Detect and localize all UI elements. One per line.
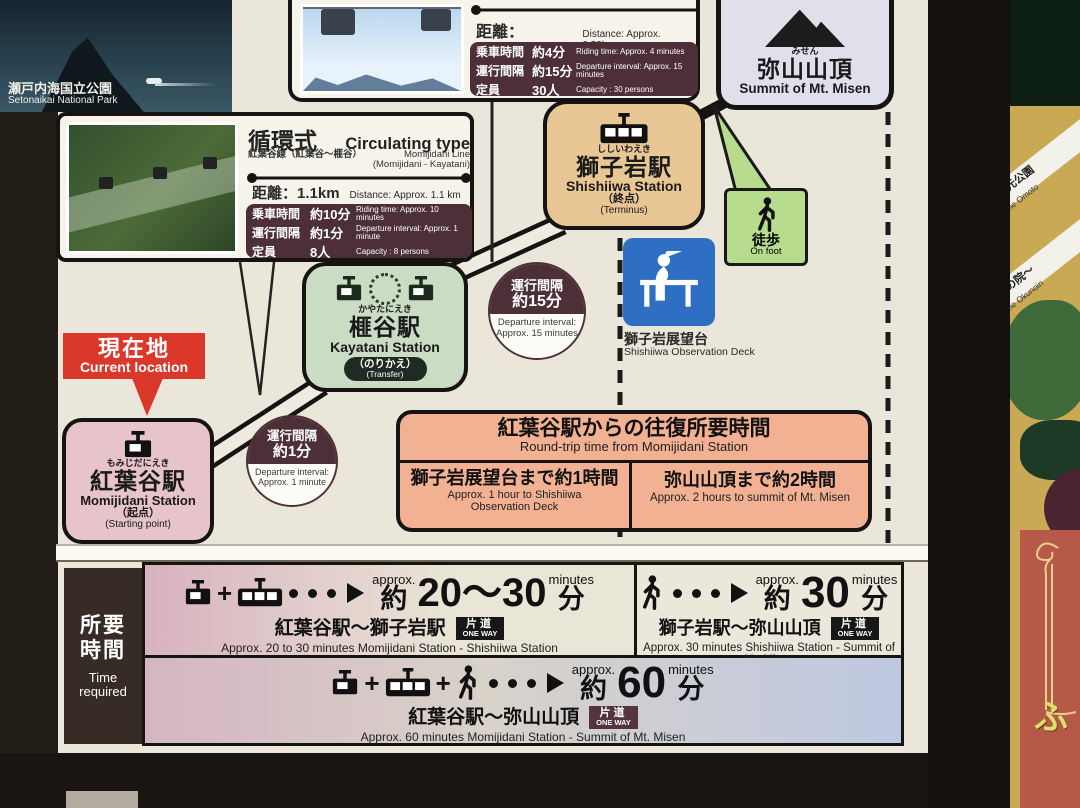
duration-value: 60 (617, 663, 666, 703)
onfoot-box: 徒歩 On foot (724, 188, 808, 266)
onfoot-label-en: On foot (750, 247, 781, 257)
riding-value-jp: 約4分 (532, 42, 576, 61)
riding-en: Riding time: Approx. 10 minutes (356, 206, 466, 222)
line-stats: 乗車時間約10分Riding time: Approx. 10 minutes … (246, 204, 472, 258)
interval-en: Departure interval: Approx. 1 minute (356, 225, 466, 241)
roundtrip-title-en: Round-trip time from Momijidani Station (400, 440, 868, 454)
current-location-flag: 現在地 Current location (63, 333, 205, 379)
capacity-en: Capacity : 30 persons (576, 86, 692, 94)
boat-wake (155, 83, 215, 86)
route-caption-en: Approx. 60 minutes Momijidani Station - … (145, 731, 901, 744)
roundtrip-left-jp: 獅子岩展望台まで約1時間 (400, 468, 629, 489)
roundtrip-left-en1: Approx. 1 hour to Shishiiwa (448, 489, 582, 501)
interval-15min-badge: 運行間隔約15分 Departure interval:Approx. 15 m… (488, 262, 586, 360)
distance-jp: 距離：1.1km (252, 182, 340, 203)
interval15-jp2: 約15分 (490, 293, 584, 311)
current-location-jp: 現在地 (63, 337, 205, 360)
transfer-pill: （のりかえ） (Transfer) (344, 357, 427, 381)
poster-text: ふ (1034, 690, 1068, 739)
sign-frame-right (928, 0, 1012, 808)
ropeway-gondola-icon (121, 431, 155, 459)
line-name-en1: Momijidani Line (404, 149, 470, 160)
current-location-en: Current location (63, 360, 205, 375)
riding-en: Riding time: Approx. 4 minutes (576, 48, 692, 56)
station-name-jp: 獅子岩駅 (576, 155, 672, 180)
map-forest-dark (1010, 0, 1080, 106)
roundtrip-right-en: Approx. 2 hours to summit of Mt. Misen (632, 492, 868, 506)
interval15-en2: Approx. 15 minutes (496, 328, 578, 339)
duration-value: 20〜30 (418, 575, 547, 611)
route-jp: 獅子岩駅〜弥山山頂 (659, 619, 821, 637)
station-name-jp: 紅葉谷駅 (90, 469, 186, 494)
dots-icon (489, 679, 498, 688)
oneway-badge: 片道ONE WAY (456, 617, 505, 640)
sign-frame-bottom (0, 753, 932, 808)
interval15-en1: Departure interval: (498, 317, 576, 328)
adjacent-map-panel: 至 大元公園 To the Omoto 至 奥の院〜 To the Okunoi… (1010, 0, 1080, 808)
capacity-label-jp: 定員 (252, 243, 310, 260)
gondola-large-icon (384, 668, 432, 698)
route-jp: 紅葉谷駅〜獅子岩駅 (275, 619, 446, 638)
walking-person-icon (753, 197, 779, 233)
route-caption-en: Approx. 20 to 30 minutes Momijidani Stat… (145, 642, 634, 655)
walking-person-icon (639, 575, 663, 611)
riding-value-jp: 約10分 (310, 204, 356, 223)
roundtrip-left-en2: Observation Deck (471, 501, 558, 513)
ropeway-guide-sign: 瀬戸内海国立公園 Setonaikai National Park 距離：0.5… (0, 0, 1080, 808)
roundtrip-title-jp: 紅葉谷駅からの往復所要時間 (400, 417, 868, 440)
station-note-en: (Starting point) (105, 520, 171, 531)
fun-label: 分 (558, 586, 585, 613)
line-stats: 乗車時間約4分Riding time: Approx. 4 minutes 運行… (470, 42, 698, 96)
timetable-cell-ropeway: + approx.約 20〜30 minutes分 紅葉谷駅〜獅子岩駅 片道ON… (145, 565, 637, 655)
capacity-value-jp: 30人 (532, 80, 576, 99)
arrow-icon (731, 583, 748, 603)
capacity-value-jp: 8人 (310, 242, 356, 261)
oneway-badge: 片道ONE WAY (589, 706, 638, 729)
plus-sign: + (364, 668, 379, 699)
dots-icon (673, 589, 682, 598)
station-name-en: Momijidani Station (80, 494, 196, 508)
interval1-en1: Departure interval: (255, 467, 329, 477)
station-name-en: Kayatani Station (330, 340, 440, 355)
arrow-icon (347, 583, 364, 603)
oneway-badge: 片道ONE WAY (831, 617, 880, 640)
timetable-row-2: + + approx.約 60 minutes分 紅葉谷駅〜弥山山頂 片道ONE… (142, 658, 904, 746)
plus-sign: + (217, 578, 232, 609)
gondola-small-icon (330, 670, 360, 696)
time-required-en2: required (79, 684, 127, 699)
ropeway-gondola-icon (597, 113, 651, 145)
summit-name-en: Summit of Mt. Misen (739, 82, 870, 97)
distance-en: Distance: Approx. 1.1 km (350, 190, 461, 201)
riding-label-jp: 乗車時間 (252, 205, 310, 222)
line-name-jp: 紅葉谷線（紅葉谷〜榧谷） (248, 150, 362, 171)
map-forest-blob (1010, 300, 1080, 420)
roundtrip-left-cell: 獅子岩展望台まで約1時間 Approx. 1 hour to Shishiiwa… (400, 463, 632, 528)
time-required-header: 所要 時間 Timerequired (64, 568, 142, 744)
interval-label-jp: 運行間隔 (252, 224, 310, 241)
riding-label-jp: 乗車時間 (476, 43, 532, 60)
interval-value-jp: 約15分 (532, 61, 576, 80)
momijidani-line-info-box: 循環式 Circulating type 紅葉谷線（紅葉谷〜榧谷） Momiji… (56, 112, 474, 262)
observation-deck-icon (623, 238, 715, 326)
panel-seam (56, 544, 928, 562)
time-required-jp2: 時間 (80, 638, 126, 663)
ropeway-forest-photo (66, 122, 238, 254)
map-path-label-1: 至 大元公園 To the Omoto (1010, 107, 1080, 220)
station-name-jp: 榧谷駅 (349, 315, 421, 340)
time-required-en1: Time (89, 670, 117, 685)
interval1-en2: Approx. 1 minute (258, 477, 326, 487)
island-photo: 瀬戸内海国立公園 Setonaikai National Park (0, 0, 232, 112)
island-caption-en: Setonaikai National Park (8, 96, 118, 107)
island-caption-jp: 瀬戸内海国立公園 (8, 82, 118, 96)
timetable-row-1: + approx.約 20〜30 minutes分 紅葉谷駅〜獅子岩駅 片道ON… (142, 562, 904, 658)
shishiiwa-line-info-box: 距離：0.52km Distance: Approx. 0.52km 乗車時間約… (288, 0, 700, 102)
roundtrip-right-jp: 弥山山頂まで約2時間 (632, 470, 868, 492)
arrow-icon (547, 673, 564, 693)
red-poster: ふ (1020, 530, 1080, 808)
interval-1min-badge: 運行間隔約1分 Departure interval:Approx. 1 min… (246, 415, 338, 507)
gondola-small-icon (183, 580, 213, 606)
observation-caption-en: Shishiiwa Observation Deck (624, 347, 804, 358)
gondola-large-icon (236, 578, 284, 608)
mountain-icon (759, 7, 851, 47)
observation-caption-jp: 獅子岩展望台 (624, 332, 804, 347)
summit-box: みせん 弥山山頂 Summit of Mt. Misen (716, 0, 894, 110)
dots-icon (289, 589, 298, 598)
duration-value: 30 (801, 573, 850, 613)
circulating-gondolas-icon (334, 273, 436, 305)
time-required-jp1: 所要 (80, 613, 126, 638)
route-jp: 紅葉谷駅〜弥山山頂 (408, 708, 579, 727)
station-note-en: (Terminus) (600, 206, 647, 217)
current-location-pointer (132, 378, 163, 416)
station-box-kayatani: かやたにえき 榧谷駅 Kayatani Station （のりかえ） (Tran… (302, 262, 468, 392)
station-box-shishiiwa: ししいわえき 獅子岩駅 Shishiiwa Station （終点） (Term… (543, 100, 705, 230)
station-note-en: (Transfer) (354, 370, 417, 379)
yaku-label: 約 (380, 586, 407, 613)
timetable-cell-walk: approx.約 30 minutes分 獅子岩駅〜弥山山頂 片道ONE WAY… (637, 565, 901, 655)
summit-name-jp: 弥山山頂 (757, 57, 853, 82)
onfoot-callout-pointer (714, 106, 772, 192)
roundtrip-right-cell: 弥山山頂まで約2時間 Approx. 2 hours to summit of … (632, 463, 868, 528)
capacity-label-jp: 定員 (476, 81, 532, 98)
onfoot-label-jp: 徒歩 (752, 233, 780, 248)
walking-person-icon (455, 665, 479, 701)
interval15-jp1: 運行間隔 (490, 279, 584, 293)
interval-label-jp: 運行間隔 (476, 62, 532, 79)
floor-glimpse (66, 791, 138, 808)
interval-value-jp: 約1分 (310, 223, 356, 242)
line-bracket (470, 4, 696, 16)
line-name-en2: (Momijidani - Kayatani) (373, 159, 470, 170)
capacity-en: Capacity : 8 persons (356, 248, 466, 256)
interval1-jp2: 約1分 (248, 444, 336, 461)
interval-en: Departure interval: Approx. 15 minutes (576, 63, 692, 79)
roundtrip-box: 紅葉谷駅からの往復所要時間 Round-trip time from Momij… (396, 410, 872, 532)
ropeway-sky-photo (300, 4, 464, 94)
station-box-momijidani: もみじだにえき 紅葉谷駅 Momijidani Station （起点） (St… (62, 418, 214, 544)
